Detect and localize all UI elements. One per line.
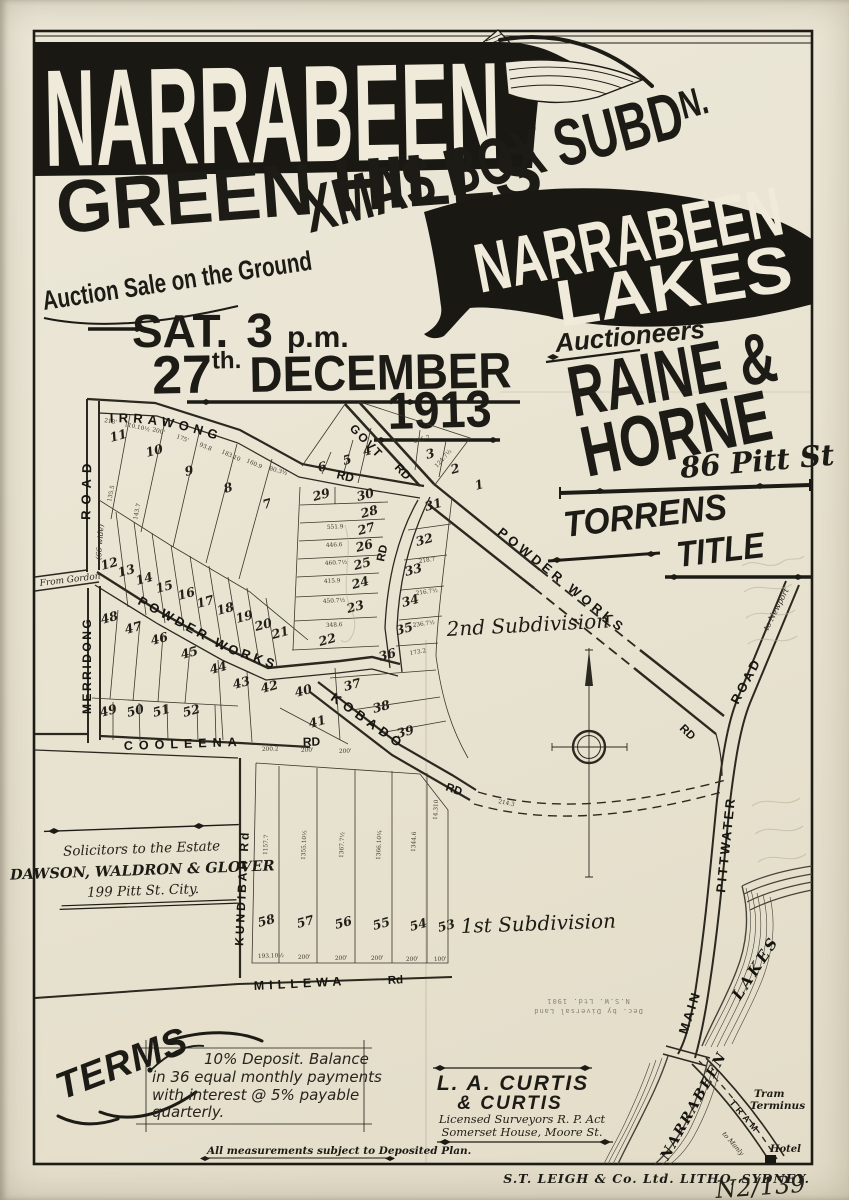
lot-number: 11	[108, 426, 129, 445]
lot-number: 56	[333, 913, 354, 932]
measurement: 173.2	[409, 648, 427, 657]
bridge	[663, 1046, 710, 1066]
kobado-continuation-dashed	[474, 780, 726, 816]
map-label: MAIN	[676, 988, 704, 1036]
measurements-note: All measurements subject to Deposited Pl…	[206, 1145, 471, 1157]
terms-block: TERMS 10% Deposit. Balance in 36 equal m…	[50, 1020, 382, 1132]
torrens-title-word: TITLE	[674, 524, 767, 575]
lot-number: 57	[295, 912, 316, 931]
lot-number: 2	[448, 460, 462, 477]
lot-number: 13	[116, 561, 137, 580]
svg-text:ROAD: ROAD	[78, 457, 94, 520]
map-label: Tram	[754, 1088, 785, 1100]
solicitors-heading: Solicitors to the Estate	[63, 838, 221, 859]
map-label: RD	[335, 467, 356, 485]
lot-number: 3	[424, 445, 437, 462]
compass-north-needle	[585, 650, 593, 686]
map-label: LAKES	[728, 933, 783, 1004]
measurement: 1366.10¾	[375, 830, 384, 860]
lot-number: 37	[342, 675, 363, 694]
map-label: 1st Subdivision	[460, 909, 616, 938]
surveyor-line-1: Licensed Surveyors R. P. Act	[438, 1112, 606, 1126]
map-label: (66 wide)	[94, 524, 105, 560]
lot-number: 17	[195, 592, 216, 611]
lot-number: 41	[307, 712, 328, 731]
lot-number: 38	[371, 697, 392, 716]
solicitors-name: DAWSON, WALDRON & GLOVER	[9, 857, 275, 883]
measurement: 200'	[339, 749, 352, 755]
svg-text:KUNDIBAH Rd: KUNDIBAH Rd	[232, 829, 252, 946]
map-label: MILLEWA	[253, 974, 346, 993]
map-label: to Manly	[720, 1130, 745, 1157]
lot-number: 46	[149, 629, 170, 648]
north-basin-top-hatch	[742, 866, 812, 910]
map-label: RD	[677, 723, 697, 743]
measurement: 460.7½	[325, 559, 348, 567]
compass-rose	[552, 648, 627, 877]
stamp-line-1: Dec. by Diversal Land	[533, 1007, 643, 1015]
map-label: Hotel	[769, 1144, 801, 1155]
terms-line-2: in 36 equal monthly payments	[152, 1068, 382, 1086]
measurement: 450.7½	[323, 597, 346, 605]
lot-number: 5	[341, 451, 353, 468]
measurement: 93.8	[198, 442, 213, 453]
measurement: 1355.10½	[300, 830, 309, 860]
measurement: 446.6	[326, 542, 343, 549]
solicitors-bottom-rule	[60, 900, 239, 910]
measurement: 80.3½	[268, 465, 288, 477]
pencil-scribble-1	[742, 556, 804, 644]
lot-number: 16	[176, 584, 197, 603]
lot-number: 40	[293, 681, 314, 700]
block3-lot-lines	[252, 763, 448, 963]
lot-number: 47	[123, 618, 144, 637]
lot-number: 36	[377, 645, 398, 664]
measurement: 100'	[434, 957, 447, 963]
measurement: 143.7	[133, 503, 142, 521]
measurement: 200'	[406, 957, 419, 963]
terms-line-1: 10% Deposit. Balance	[204, 1050, 369, 1068]
poster-page: NARRABEEN XMAS BOX SUBDN. GREEN HILLS NA…	[0, 0, 849, 1200]
lot-number: 18	[215, 599, 236, 618]
measurement: 218.7	[418, 557, 436, 565]
lot-number: 42	[259, 677, 280, 696]
surveyor-line-2: Somerset House, Moore St.	[441, 1125, 602, 1139]
measurement: 348.6	[326, 622, 343, 629]
poster-canvas: NARRABEEN XMAS BOX SUBDN. GREEN HILLS NA…	[0, 0, 849, 1200]
lot-number: 51	[151, 701, 172, 720]
map-label: Rd	[388, 974, 404, 987]
lot-number: 31	[423, 495, 444, 514]
lot-number: 58	[256, 911, 277, 930]
lot-number: 22	[316, 630, 338, 649]
measurement: 1344.6	[411, 831, 418, 852]
upside-down-stamp: Dec. by Diversal Land N.S.W. Ltd. 1901	[533, 997, 643, 1015]
lot-number: 19	[234, 607, 255, 626]
measurement: 200'	[335, 956, 348, 962]
lot-number: 25	[351, 554, 373, 573]
lot-number: 44	[208, 658, 229, 677]
measurement: 1157.7	[263, 834, 270, 855]
lot-number: 10	[144, 441, 165, 460]
measurement: 135.5	[107, 485, 116, 503]
lot-number: 30	[355, 485, 376, 504]
merridong-label: MERRIDONG	[80, 617, 94, 714]
torrens-underline	[548, 553, 660, 561]
lot-number: 6	[316, 458, 329, 475]
svg-text:MERRIDONG: MERRIDONG	[80, 617, 94, 714]
measurement: 1367.7½	[338, 831, 346, 858]
lot-number: 26	[353, 536, 375, 555]
measurement: 415.9	[324, 578, 341, 585]
svg-text:KOBADO: KOBADO	[328, 690, 408, 753]
measurement: 236.7½	[412, 619, 435, 629]
measurement: 175'	[175, 434, 189, 444]
map-label: RD	[375, 544, 390, 563]
west-road-label: ROAD	[78, 457, 94, 520]
lot-number: 32	[414, 530, 435, 549]
lot-number: 1	[473, 476, 485, 493]
surveyor-name-1: L. A. CURTIS	[437, 1072, 589, 1095]
measurement: 160.9	[245, 458, 263, 470]
measurement: 193.10½	[258, 952, 285, 960]
map-label: RD	[392, 460, 414, 482]
kobado-label: KOBADO	[328, 690, 408, 753]
lot-number: 27	[355, 519, 377, 538]
measurement: 14.310	[433, 799, 440, 820]
lot-number: 7	[261, 495, 274, 512]
lot-number: 9	[183, 462, 196, 479]
year: 1913	[387, 380, 492, 441]
map-label: RD	[444, 782, 464, 799]
lot-number: 35	[394, 619, 415, 638]
lot-number: 43	[231, 673, 252, 692]
surveyors-block: L. A. CURTIS & CURTIS Licensed Surveyors…	[433, 1065, 613, 1145]
lot-number: 29	[310, 485, 332, 504]
terms-line-3: with interest @ 5% payable	[152, 1086, 359, 1104]
lot-number: 39	[395, 722, 416, 741]
measurement: 213'	[104, 418, 118, 426]
lot-number: 55	[371, 914, 392, 933]
measurement: 200'	[298, 955, 311, 961]
lot-number: 53	[436, 916, 457, 935]
measurement: 183.10	[220, 449, 241, 463]
solicitors-address: 199 Pitt St. City.	[87, 881, 200, 901]
measurement: 551.9	[327, 524, 344, 531]
lot-number: 49	[98, 701, 119, 720]
lot-number: 28	[358, 502, 380, 521]
lot-number: 14	[134, 569, 155, 588]
lot-number: 15	[154, 577, 175, 596]
stamp-line-2: N.S.W. Ltd. 1901	[546, 997, 629, 1005]
lot-number: 21	[269, 623, 291, 642]
lot-boundaries	[92, 402, 470, 963]
hotel-square	[765, 1155, 776, 1163]
map-label: Terminus	[750, 1100, 805, 1112]
lot-number: 24	[349, 573, 371, 592]
lot-number: 50	[125, 701, 146, 720]
pencil-catalogue-number: N2/139	[713, 1170, 806, 1200]
surveyor-name-2: & CURTIS	[457, 1093, 562, 1114]
measurement: 200'	[301, 748, 314, 754]
map-label: 2nd Subdivision	[445, 609, 610, 642]
measurement: 200'	[371, 956, 384, 962]
pencil-scribble-2	[752, 798, 806, 862]
solicitors-top-rule	[44, 825, 239, 832]
kundibah-label: KUNDIBAH Rd	[232, 829, 252, 946]
measurement: 200.2	[262, 746, 279, 753]
terms-line-4: quarterly.	[152, 1103, 224, 1121]
map-label: COOLEENA	[124, 735, 243, 753]
map-label: to Newport	[762, 586, 791, 632]
north-basin-shore	[702, 886, 747, 1046]
